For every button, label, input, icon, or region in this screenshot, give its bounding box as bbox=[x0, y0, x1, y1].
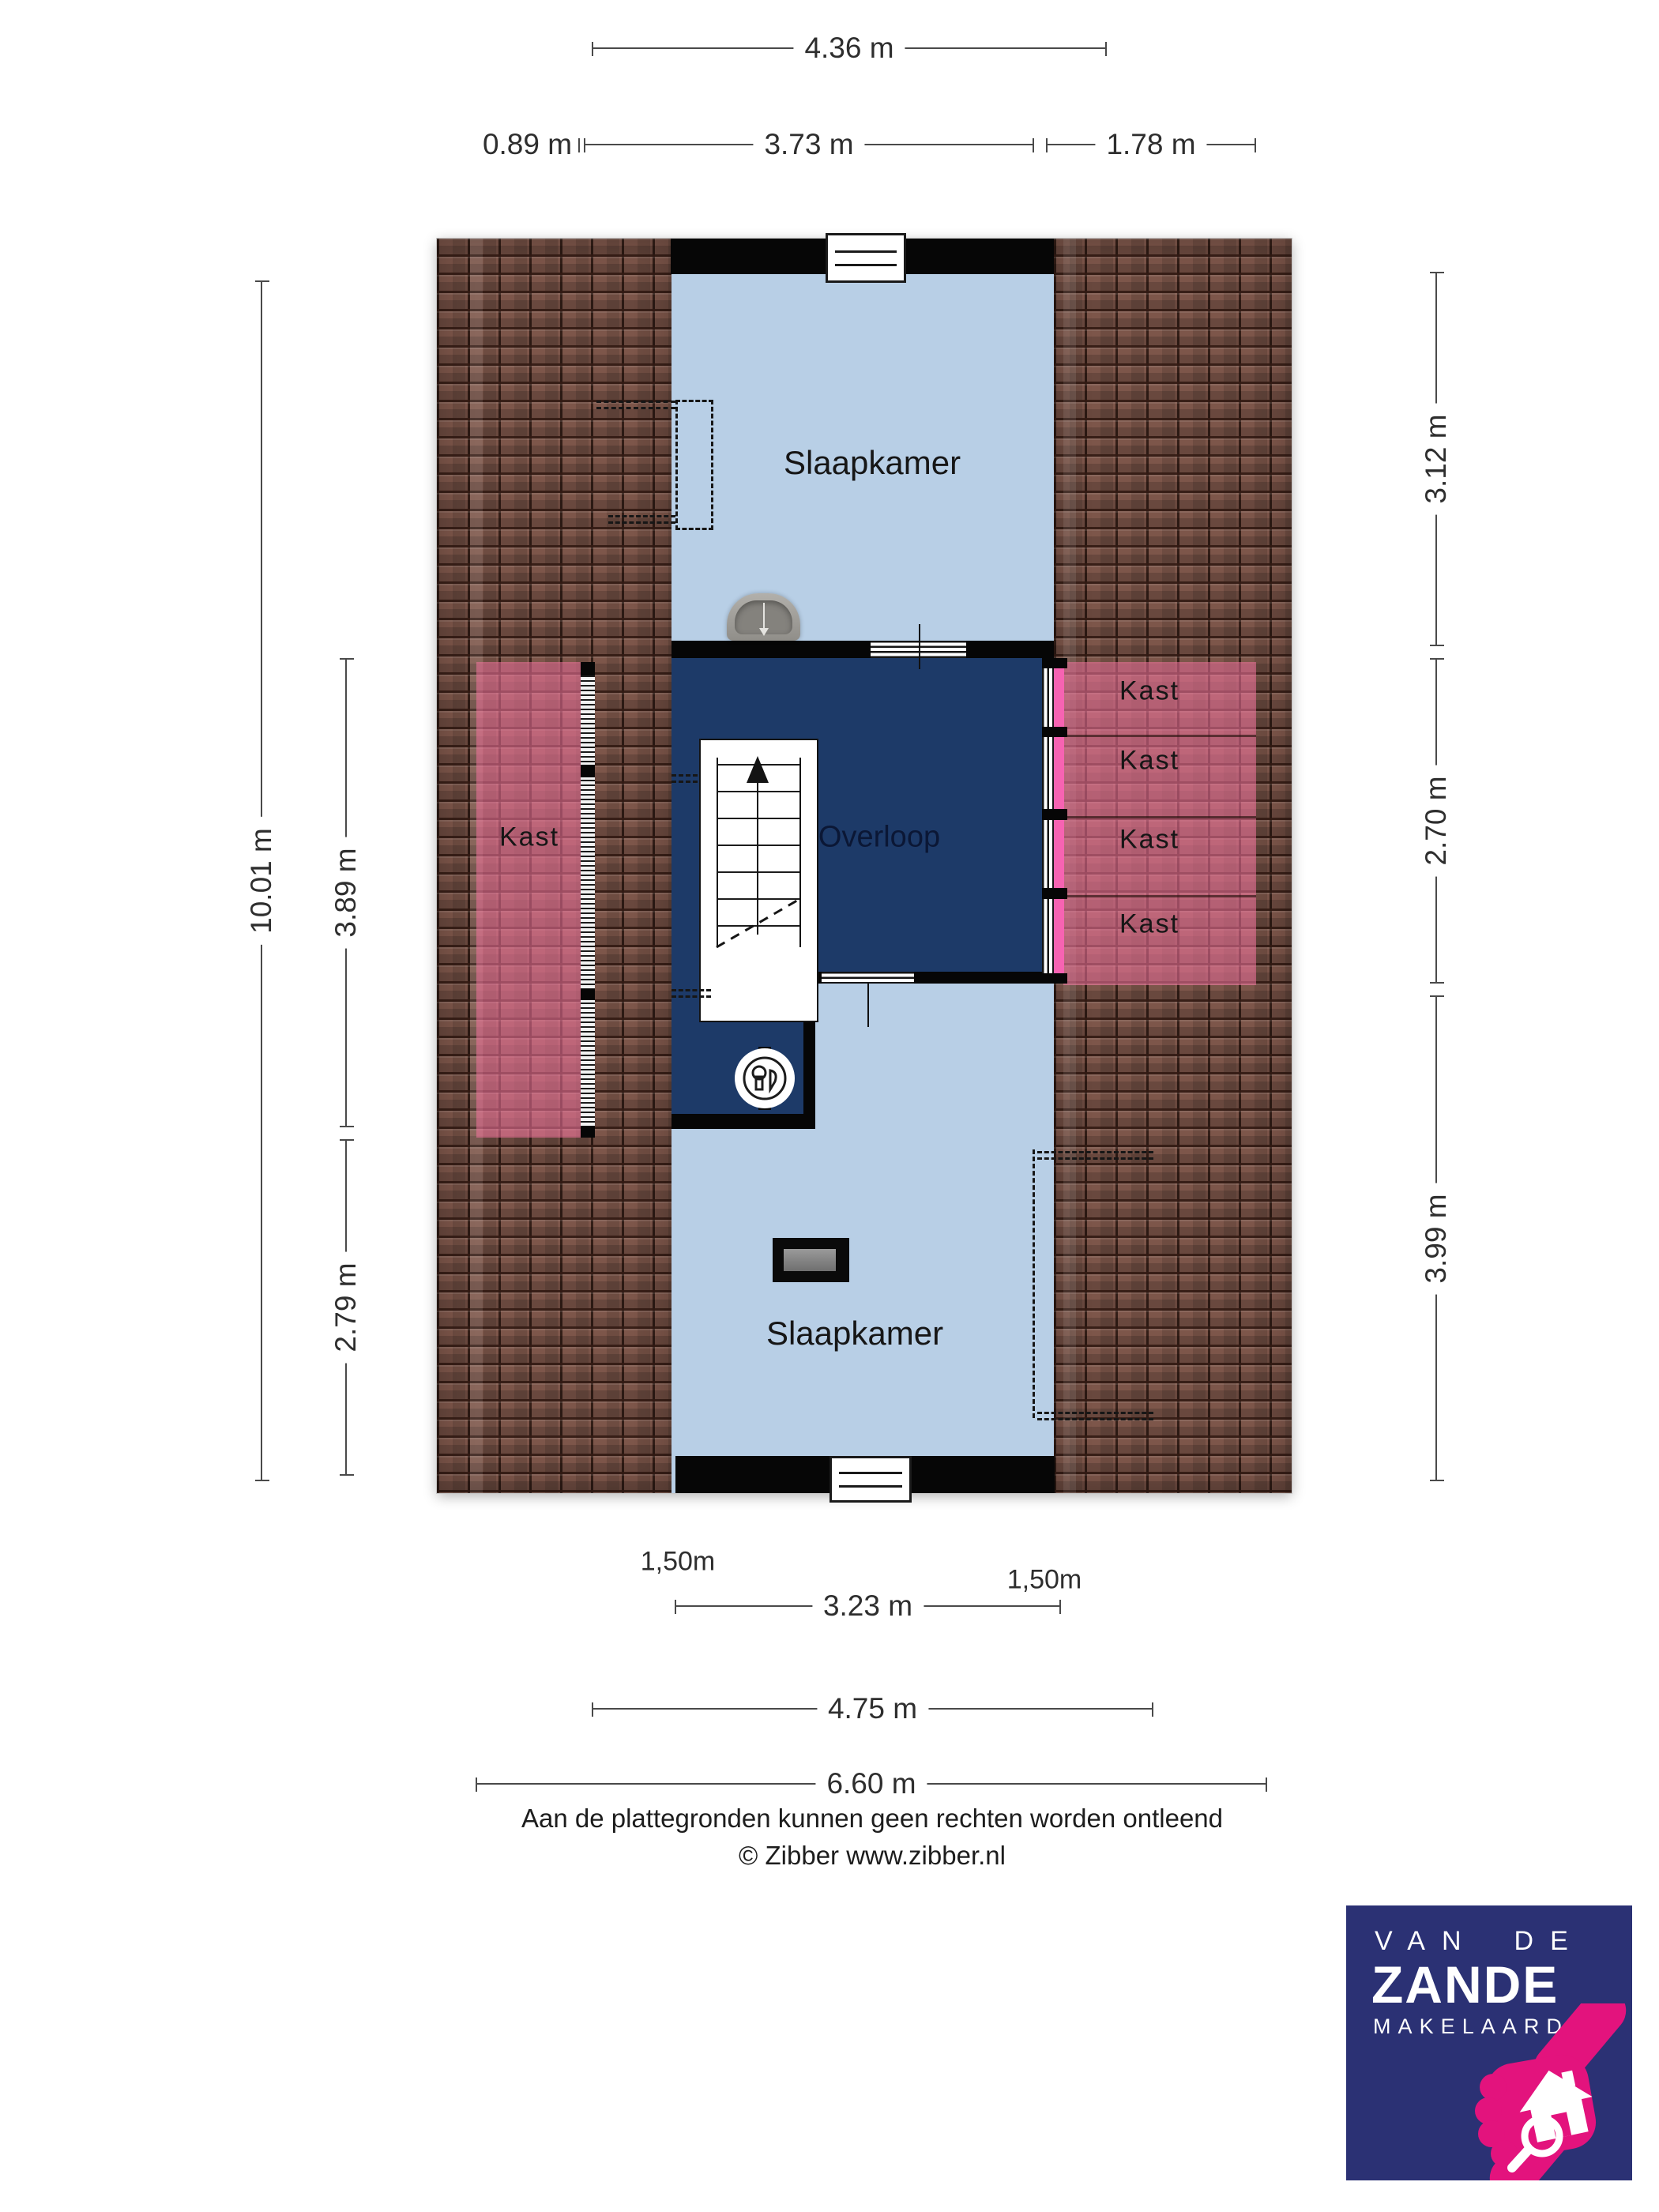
roof-height-label-left: 1,50m bbox=[641, 1547, 716, 1578]
copyright-text: © Zibber www.zibber.nl bbox=[739, 1841, 1006, 1871]
stair-cut-line bbox=[701, 740, 817, 1021]
sink-tap-icon bbox=[763, 603, 765, 630]
dim-label-right-middle: 2.70 m bbox=[1420, 765, 1453, 876]
roof-height-label-right: 1,50m bbox=[1007, 1565, 1082, 1596]
room-label-bedroom-bottom: Slaapkamer bbox=[766, 1315, 943, 1352]
dim-line-right-middle: 2.70 m bbox=[1435, 658, 1437, 984]
door-bedroombottom bbox=[822, 972, 914, 984]
dim-line-right-bottom: 3.99 m bbox=[1435, 995, 1437, 1481]
room-label-closet-left: Kast bbox=[499, 822, 559, 853]
room-label-closet-2: Kast bbox=[1119, 746, 1179, 777]
chimney bbox=[773, 1238, 849, 1282]
logo-house-magnifier-icon bbox=[1473, 2003, 1631, 2180]
dim-line-top-total: 4.36 m bbox=[592, 47, 1107, 49]
closet-separator bbox=[1063, 816, 1256, 818]
dim-line-top-right: 1.78 m bbox=[1046, 144, 1256, 145]
closet-door-accent bbox=[1054, 668, 1064, 727]
closet-wall-stub bbox=[1042, 809, 1067, 820]
room-label-closet-4: Kast bbox=[1119, 909, 1179, 940]
door-closet-1 bbox=[1042, 668, 1054, 727]
door-swing-line bbox=[867, 984, 869, 1027]
room-label-landing: Overloop bbox=[818, 821, 940, 855]
window-top bbox=[826, 233, 906, 283]
window-bottom bbox=[829, 1456, 912, 1503]
chimney-flue bbox=[784, 1249, 836, 1271]
room-label-bedroom-top: Slaapkamer bbox=[784, 444, 961, 482]
closet-wall-stub bbox=[1042, 888, 1067, 899]
dim-label-bottom-middle: 4.75 m bbox=[817, 1692, 928, 1725]
dim-label-top-left: 0.89 m bbox=[472, 128, 583, 161]
dim-line-left-lower: 2.79 m bbox=[345, 1139, 347, 1476]
dim-label-left-upper: 3.89 m bbox=[329, 837, 363, 948]
logo-van-de-zande: VAN DE ZANDE MAKELAARDIJ bbox=[1346, 1905, 1632, 2180]
dormer-dash bbox=[1037, 1412, 1153, 1414]
dormer-dash bbox=[608, 521, 675, 524]
dim-line-bottom-inner: 3.23 m bbox=[675, 1605, 1061, 1607]
window-glass bbox=[835, 250, 897, 266]
room-label-closet-3: Kast bbox=[1119, 825, 1179, 856]
closet-door-accent bbox=[1054, 737, 1064, 809]
dormer-dash bbox=[1037, 1157, 1153, 1160]
closet-left-highlight bbox=[476, 662, 590, 1138]
dim-line-top-middle: 3.73 m bbox=[584, 144, 1034, 145]
dim-label-left-total: 10.01 m bbox=[245, 817, 278, 945]
dim-label-top-total: 4.36 m bbox=[793, 32, 905, 65]
door-closet-4 bbox=[1042, 899, 1054, 973]
dashed-mark bbox=[671, 774, 698, 777]
floorplan: Slaapkamer Overloop Slaapkamer Kast Kast… bbox=[437, 239, 1292, 1493]
door-closet-2 bbox=[1042, 737, 1054, 809]
dormer-dash bbox=[1037, 1151, 1153, 1153]
closet-wall-stub bbox=[1042, 973, 1067, 984]
dim-label-top-right: 1.78 m bbox=[1095, 128, 1206, 161]
dashed-mark bbox=[671, 995, 711, 998]
dim-line-top-left: 0.89 m bbox=[475, 144, 580, 145]
closet-wall-stub bbox=[1042, 658, 1067, 668]
dim-label-bottom-inner: 3.23 m bbox=[812, 1589, 924, 1623]
dashed-mark bbox=[671, 781, 698, 783]
wall-alcove-bottom bbox=[671, 1114, 815, 1129]
dim-line-bottom-middle: 4.75 m bbox=[592, 1708, 1153, 1710]
dashed-mark bbox=[671, 989, 711, 991]
closet-door-accent bbox=[1054, 899, 1064, 973]
dim-line-left-total: 10.01 m bbox=[261, 280, 262, 1481]
dim-label-right-bottom: 3.99 m bbox=[1420, 1183, 1453, 1294]
dim-line-left-upper: 3.89 m bbox=[345, 658, 347, 1127]
dormer-dash bbox=[596, 407, 675, 409]
floorplan-page: 4.36 m 0.89 m 3.73 m 1.78 m 10.01 m 3.89… bbox=[0, 0, 1659, 2212]
closet-wall-stub bbox=[1042, 727, 1067, 737]
knee-wall-stub bbox=[581, 662, 595, 675]
closet-separator bbox=[1063, 895, 1256, 897]
staircase bbox=[699, 739, 818, 1022]
knee-wall-hatch bbox=[581, 675, 595, 1126]
dim-label-top-middle: 3.73 m bbox=[753, 128, 864, 161]
door-closet-3 bbox=[1042, 820, 1054, 888]
disclaimer-text: Aan de plattegronden kunnen geen rechten… bbox=[521, 1804, 1223, 1834]
dormer-outline-bottom bbox=[1033, 1149, 1035, 1418]
wall-bedroomtop-landing bbox=[671, 641, 1054, 658]
dim-label-bottom-total: 6.60 m bbox=[815, 1767, 927, 1800]
knee-wall-stub bbox=[581, 765, 595, 777]
window-glass bbox=[839, 1472, 902, 1488]
room-label-closet-1: Kast bbox=[1119, 676, 1179, 707]
dormer-dash bbox=[1037, 1418, 1153, 1420]
knee-wall-stub bbox=[581, 989, 595, 1000]
dim-line-right-top: 3.12 m bbox=[1435, 272, 1437, 646]
sink bbox=[727, 593, 800, 641]
dormer-dash bbox=[608, 515, 675, 517]
dim-label-right-top: 3.12 m bbox=[1420, 403, 1453, 514]
closet-separator bbox=[1063, 735, 1256, 737]
closet-door-accent bbox=[1054, 820, 1064, 888]
dim-line-bottom-total: 6.60 m bbox=[476, 1783, 1267, 1785]
dormer-outline-top bbox=[675, 400, 713, 530]
logo-line-van-de: VAN DE bbox=[1375, 1926, 1585, 1957]
boiler-unit-icon bbox=[733, 1047, 796, 1110]
dim-label-left-lower: 2.79 m bbox=[329, 1251, 363, 1363]
door-swing-line bbox=[919, 624, 920, 669]
dormer-dash bbox=[596, 401, 675, 403]
knee-wall-stub bbox=[581, 1126, 595, 1138]
